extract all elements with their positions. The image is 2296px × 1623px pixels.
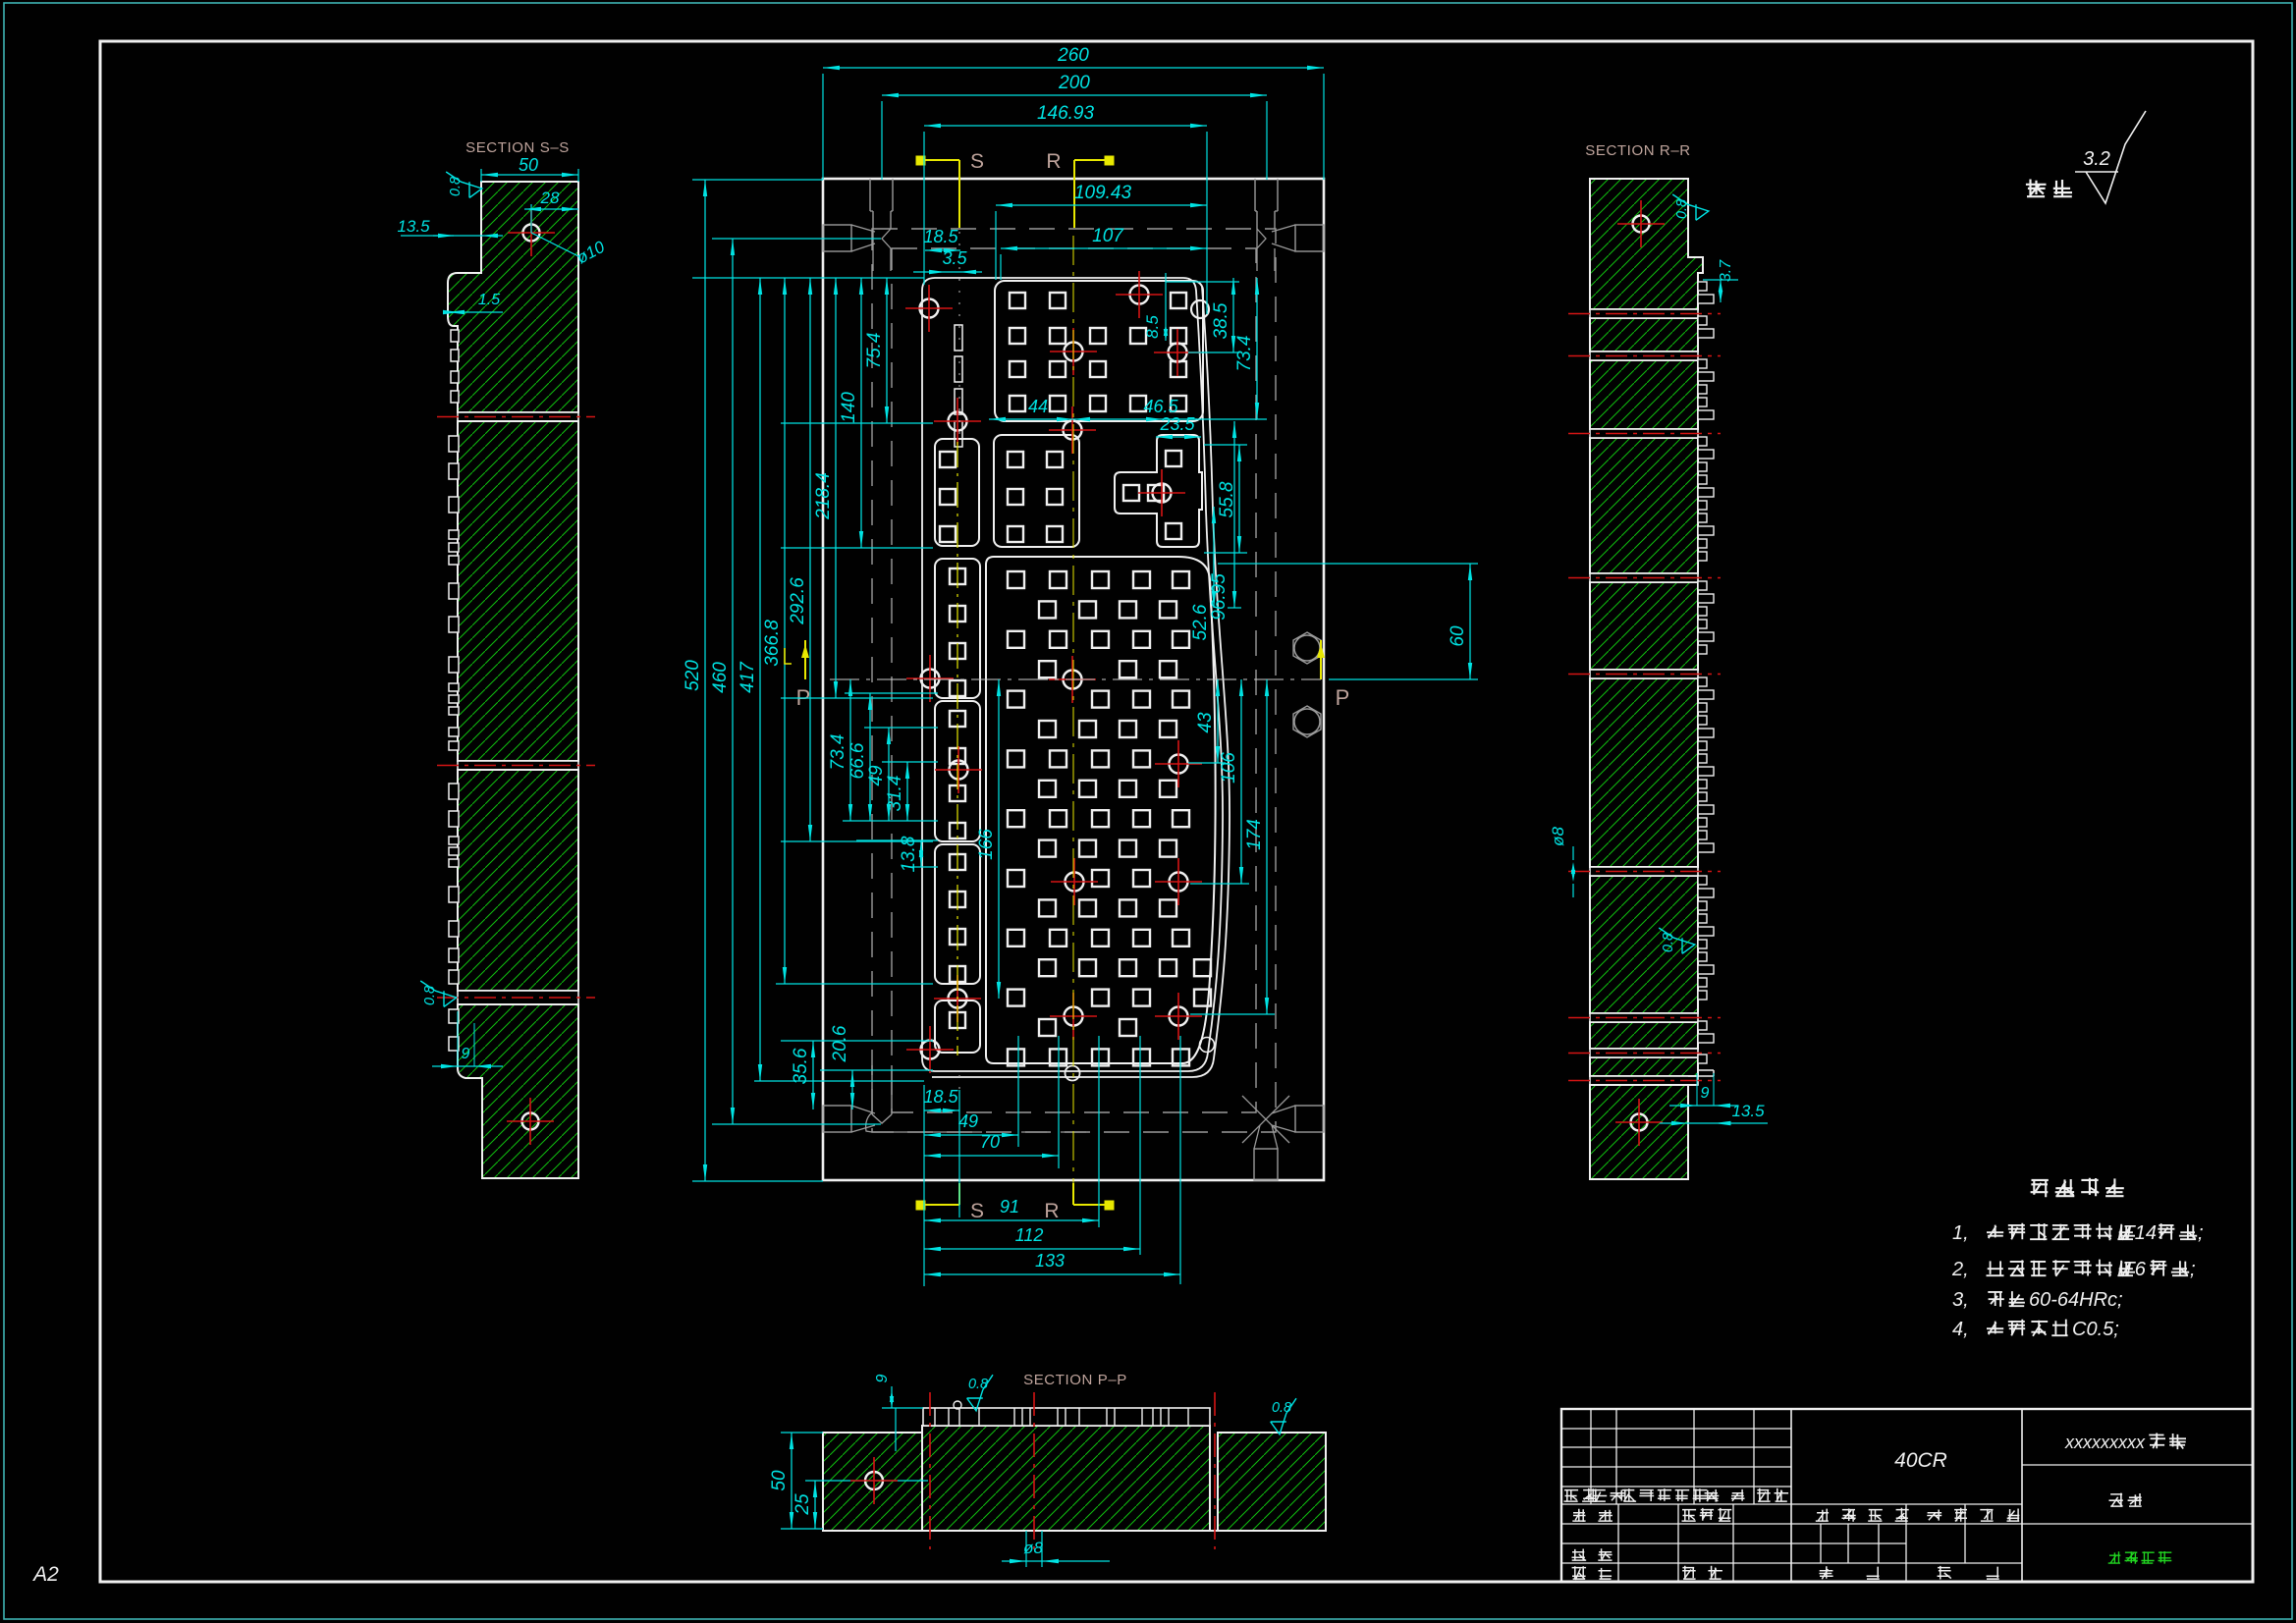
svg-text:S: S [970,1200,984,1222]
svg-text:133: 133 [1035,1251,1065,1271]
svg-text:R: R [1044,1200,1059,1222]
svg-text:60-64HRc;: 60-64HRc; [2029,1289,2123,1311]
svg-text:166: 166 [976,829,997,860]
svg-text:9: 9 [874,1374,891,1382]
svg-text:4,: 4, [1952,1319,1969,1340]
svg-text:417: 417 [738,661,758,693]
svg-text:23.5: 23.5 [1159,414,1195,434]
svg-text:109.43: 109.43 [1074,183,1132,203]
svg-text:107: 107 [1092,226,1124,246]
svg-text:1,: 1, [1952,1222,1969,1244]
svg-text:18.5: 18.5 [923,1087,958,1107]
svg-text:SECTION P–P: SECTION P–P [1023,1372,1127,1388]
svg-text:0.8: 0.8 [448,177,464,196]
svg-text:260: 260 [1057,45,1089,66]
svg-text:3.5: 3.5 [942,248,967,268]
svg-text:C0.5;: C0.5; [2072,1319,2119,1340]
svg-text:73.4: 73.4 [1234,336,1255,372]
svg-text:SECTION R–R: SECTION R–R [1585,142,1690,159]
svg-text:1.5: 1.5 [478,292,500,308]
svg-text:0.8: 0.8 [1661,933,1676,952]
svg-text:18.5: 18.5 [923,227,958,246]
svg-text:IT14: IT14 [2117,1222,2157,1244]
svg-text:460: 460 [710,662,731,693]
svg-text:;: ; [2198,1222,2204,1244]
svg-text:8.5: 8.5 [1143,315,1162,339]
svg-text:9: 9 [462,1046,470,1062]
svg-text:0.8: 0.8 [1272,1400,1291,1416]
svg-text:218.4: 218.4 [813,472,834,520]
svg-text:R: R [1046,150,1061,173]
svg-text:520: 520 [683,660,703,691]
svg-text:75.4: 75.4 [864,333,885,369]
svg-text:40CR: 40CR [1894,1449,1947,1472]
svg-text:44: 44 [1028,397,1048,416]
svg-text:200: 200 [1058,73,1090,93]
svg-text:38.5: 38.5 [1211,302,1231,339]
svg-text:xxxxxxxxx: xxxxxxxxx [2064,1433,2146,1452]
svg-text:50: 50 [769,1470,790,1491]
svg-text:96.95: 96.95 [1209,573,1230,621]
svg-text:0.8: 0.8 [1674,199,1690,219]
svg-text:20.6: 20.6 [830,1025,850,1062]
svg-text:0.8: 0.8 [422,986,438,1005]
svg-text:174: 174 [1244,819,1265,850]
svg-text:43: 43 [1195,712,1216,733]
svg-text:46.5: 46.5 [1143,397,1178,416]
svg-text:3.7: 3.7 [1718,259,1734,282]
svg-text:3,: 3, [1952,1289,1969,1311]
svg-text:49: 49 [866,765,887,786]
svg-text:66.6: 66.6 [847,742,868,779]
svg-text:28: 28 [540,189,560,207]
svg-text:ø8: ø8 [1549,827,1567,846]
svg-text:P: P [1336,685,1350,710]
svg-text:366.8: 366.8 [762,620,783,667]
svg-text:35.6: 35.6 [791,1048,811,1084]
svg-text:25: 25 [793,1493,813,1516]
svg-text:9: 9 [1701,1085,1710,1102]
svg-text:52.6: 52.6 [1190,604,1211,640]
svg-text:3.2: 3.2 [2083,148,2110,170]
svg-text:49: 49 [958,1111,978,1131]
svg-text:112: 112 [1015,1225,1044,1245]
svg-text:140: 140 [839,392,859,423]
svg-text:A2: A2 [31,1563,59,1586]
svg-text:13.8: 13.8 [899,836,919,872]
svg-text:;: ; [2190,1259,2196,1280]
svg-text:146.93: 146.93 [1037,103,1095,124]
svg-text:73.4: 73.4 [828,734,848,771]
svg-text:0.8: 0.8 [968,1377,988,1392]
svg-text:13.5: 13.5 [1731,1102,1765,1120]
svg-text:60: 60 [1448,625,1468,647]
svg-text:31.4: 31.4 [885,776,905,812]
svg-text:S: S [970,150,984,173]
svg-text:292.6: 292.6 [788,577,808,625]
svg-text:2,: 2, [1951,1259,1969,1280]
svg-text:13.5: 13.5 [397,217,430,236]
svg-text:91: 91 [1000,1197,1019,1217]
svg-text:SECTION S–S: SECTION S–S [465,139,570,156]
svg-text:50: 50 [519,155,538,175]
svg-text:106: 106 [1219,752,1239,784]
svg-text:IT6: IT6 [2117,1259,2147,1280]
svg-text:70: 70 [980,1132,1000,1152]
